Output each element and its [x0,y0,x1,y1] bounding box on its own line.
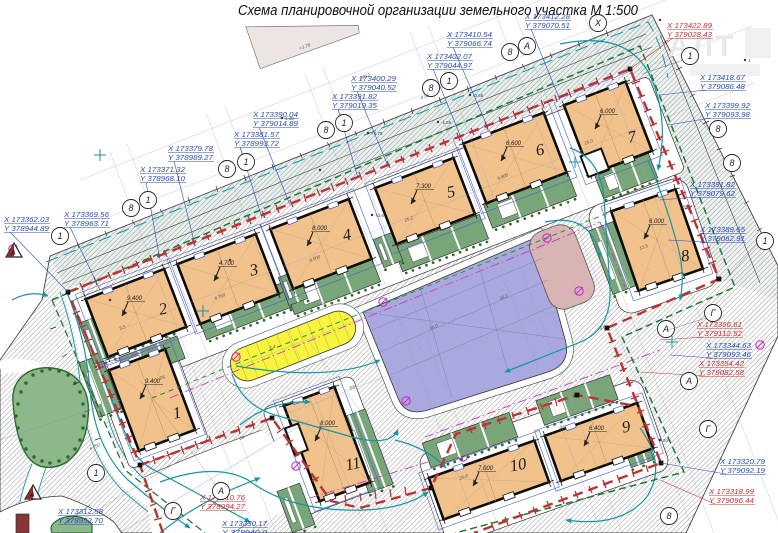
svg-text:4.700: 4.700 [219,261,235,267]
svg-text:X 173354.42: X 173354.42 [698,361,744,368]
svg-text:Y 378993.72: Y 378993.72 [234,141,279,148]
svg-text:6.400: 6.400 [589,426,605,432]
svg-text:8: 8 [729,158,734,168]
svg-text:Y 379079.62: Y 379079.62 [690,191,735,198]
svg-text:1: 1 [57,231,62,241]
svg-text:1: 1 [762,236,767,246]
svg-text:8: 8 [128,203,133,213]
svg-text:X 173410.54: X 173410.54 [446,32,492,39]
svg-text:Схема планировочной организаци: Схема планировочной организации земельно… [238,3,638,19]
svg-text:X 173422.89: X 173422.89 [666,23,712,30]
svg-text:+4.78: +4.78 [371,131,383,136]
svg-text:7.000: 7.000 [478,466,494,472]
svg-text:Y 379028.43: Y 379028.43 [667,32,712,39]
svg-text:Y 379092.19: Y 379092.19 [720,468,765,475]
svg-text:Y 379044.97: Y 379044.97 [427,63,473,70]
svg-text:Y 378944.89: Y 378944.89 [4,226,49,233]
svg-text:8.000: 8.000 [320,421,336,427]
svg-text:X 173399.92: X 173399.92 [704,103,750,110]
svg-text:Y 378952.70: Y 378952.70 [58,518,103,525]
svg-text:X 173320.79: X 173320.79 [719,459,765,466]
svg-text:X 173412.28: X 173412.28 [524,14,570,21]
svg-text:7.300: 7.300 [416,184,432,190]
svg-text:X 173369.56: X 173369.56 [63,212,109,219]
svg-text:X 173312.58: X 173312.58 [57,509,103,516]
svg-text:X 173402.07: X 173402.07 [426,54,473,61]
svg-text:X: X [594,18,602,28]
svg-text:Y 379082.58: Y 379082.58 [699,370,744,377]
svg-text:9.400: 9.400 [127,296,143,302]
svg-text:Y 378963.71: Y 378963.71 [64,221,109,228]
svg-text:X 173418.67: X 173418.67 [699,75,746,82]
svg-text:Y 379093.98: Y 379093.98 [705,112,750,119]
svg-text:-1.55: -1.55 [441,120,452,125]
svg-text:8пч: 8пч [663,438,671,443]
svg-text:Y 379093.46: Y 379093.46 [706,352,751,359]
svg-text:8: 8 [666,511,671,521]
svg-text:X 173381.57: X 173381.57 [233,132,280,139]
svg-text:8: 8 [715,124,720,134]
svg-text:.: . [323,168,324,173]
svg-text:X 173391.82: X 173391.82 [689,182,735,189]
svg-text:А: А [685,376,692,386]
svg-text:А: А [523,41,530,51]
svg-text:8: 8 [428,83,433,93]
svg-text:Y 379062.91: Y 379062.91 [700,236,745,243]
svg-text:8.000: 8.000 [312,226,328,232]
svg-text:Y 379070.51: Y 379070.51 [525,23,570,30]
svg-text:Y 379019.35: Y 379019.35 [332,103,377,110]
svg-text:1: 1 [243,157,248,167]
svg-text:+3.6: +3.6 [375,213,384,218]
svg-text:X 173366.61: X 173366.61 [696,322,742,329]
svg-text:Y 379066.74: Y 379066.74 [447,41,492,48]
svg-text:X 173344.63: X 173344.63 [705,343,751,350]
svg-text:1: 1 [93,468,98,478]
svg-text:А: А [10,250,16,257]
svg-text:8: 8 [224,164,229,174]
svg-text:Y 379086.48: Y 379086.48 [700,84,745,91]
svg-text:8: 8 [507,47,512,57]
svg-text:1.48: 1.48 [285,116,294,121]
svg-text:1: 1 [145,195,150,205]
svg-text:8: 8 [323,125,328,135]
svg-text:X 173371.32: X 173371.32 [139,167,185,174]
svg-text:X 173318.99: X 173318.99 [708,489,754,496]
svg-text:1: 1 [341,118,346,128]
svg-text:X 173389.65: X 173389.65 [699,227,745,234]
svg-text:X 173379.78: X 173379.78 [167,146,213,153]
svg-text:X 173400.29: X 173400.29 [350,76,396,83]
svg-text:Y 379096.44: Y 379096.44 [709,498,754,505]
svg-text:А: А [29,492,35,499]
svg-text:Y 379014.89: Y 379014.89 [253,121,298,128]
svg-text:6.600: 6.600 [506,141,522,147]
svg-text:9.400: 9.400 [145,379,161,385]
svg-text:1: 1 [687,51,692,61]
svg-text:X 173362.03: X 173362.03 [3,217,49,224]
svg-text:6.000: 6.000 [600,109,616,115]
svg-text:Y 378989.27: Y 378989.27 [168,155,214,162]
svg-text:Y 378994.27: Y 378994.27 [200,504,246,511]
svg-text:-0.55: -0.55 [473,93,484,98]
svg-text:Y 379040.52: Y 379040.52 [351,85,396,92]
svg-text:6.000: 6.000 [649,219,665,225]
svg-text:А: А [217,486,224,496]
svg-text:1: 1 [446,76,451,86]
svg-text:X 173391.82: X 173391.82 [331,94,377,101]
svg-text:А: А [662,324,669,334]
svg-text:Y 379112.52: Y 379112.52 [697,331,742,338]
svg-text:X 173330.17: X 173330.17 [221,521,268,528]
